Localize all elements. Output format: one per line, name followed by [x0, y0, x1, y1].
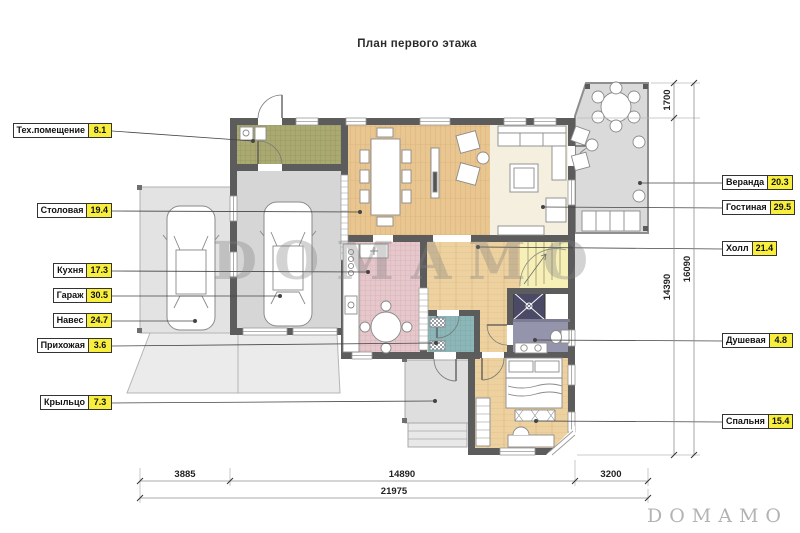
page-title: План первого этажа [217, 38, 617, 50]
room-label-hall: Холл21.4 [722, 241, 777, 256]
dim-right-2: 14390 [662, 274, 673, 300]
dim-right-total: 16090 [682, 256, 693, 282]
room-label-tech: Тех.помещение8.1 [13, 123, 113, 138]
room-label-carport: Навес24.7 [53, 313, 112, 328]
watermark-corner: DOMAMO [647, 505, 788, 527]
room-name: Столовая [37, 203, 88, 218]
room-label-bedroom: Спальня15.4 [722, 414, 793, 429]
room-name: Веранда [722, 175, 768, 190]
room-area: 4.8 [770, 333, 793, 348]
dim-bottom-total: 21975 [381, 486, 408, 497]
driveway-area [127, 333, 340, 393]
room-name: Гараж [53, 288, 88, 303]
room-area: 21.4 [753, 241, 778, 256]
room-area: 30.5 [87, 288, 112, 303]
room-name: Кухня [53, 263, 87, 278]
room-label-living: Гостиная29.5 [722, 200, 795, 215]
room-label-garage: Гараж30.5 [53, 288, 112, 303]
room-area: 20.3 [768, 175, 793, 190]
room-area: 15.4 [769, 414, 794, 429]
room-label-porch: Крыльцо7.3 [40, 395, 112, 410]
room-area: 29.5 [771, 200, 796, 215]
room-area: 19.4 [87, 203, 112, 218]
room-name: Гостиная [722, 200, 771, 215]
room-area: 17.3 [87, 263, 112, 278]
room-area: 24.7 [87, 313, 112, 328]
dim-bottom-3: 3200 [600, 469, 621, 480]
room-area: 8.1 [89, 123, 112, 138]
room-area: 3.6 [89, 338, 112, 353]
room-name: Холл [722, 241, 753, 256]
floor-plan-drawing: 3885 14890 3200 21975 1700 14390 16090 [0, 0, 800, 533]
dim-bottom-1: 3885 [174, 469, 196, 480]
room-name: Навес [53, 313, 88, 328]
room-label-shower: Душевая4.8 [722, 333, 793, 348]
room-name: Душевая [722, 333, 770, 348]
room-label-entry: Прихожая3.6 [37, 338, 112, 353]
room-name: Спальня [722, 414, 769, 429]
room-label-veranda: Веранда20.3 [722, 175, 793, 190]
dim-bottom-2: 14890 [389, 469, 415, 480]
room-area: 7.3 [89, 395, 112, 410]
floor-plan-sheet: 3885 14890 3200 21975 1700 14390 16090 П… [0, 0, 800, 533]
dim-right-1: 1700 [662, 89, 673, 110]
room-name: Тех.помещение [13, 123, 90, 138]
room-name: Крыльцо [40, 395, 89, 410]
shower-cabin [513, 292, 545, 320]
room-name: Прихожая [37, 338, 89, 353]
room-label-dining: Столовая19.4 [37, 203, 112, 218]
room-label-kitchen: Кухня17.3 [53, 263, 112, 278]
